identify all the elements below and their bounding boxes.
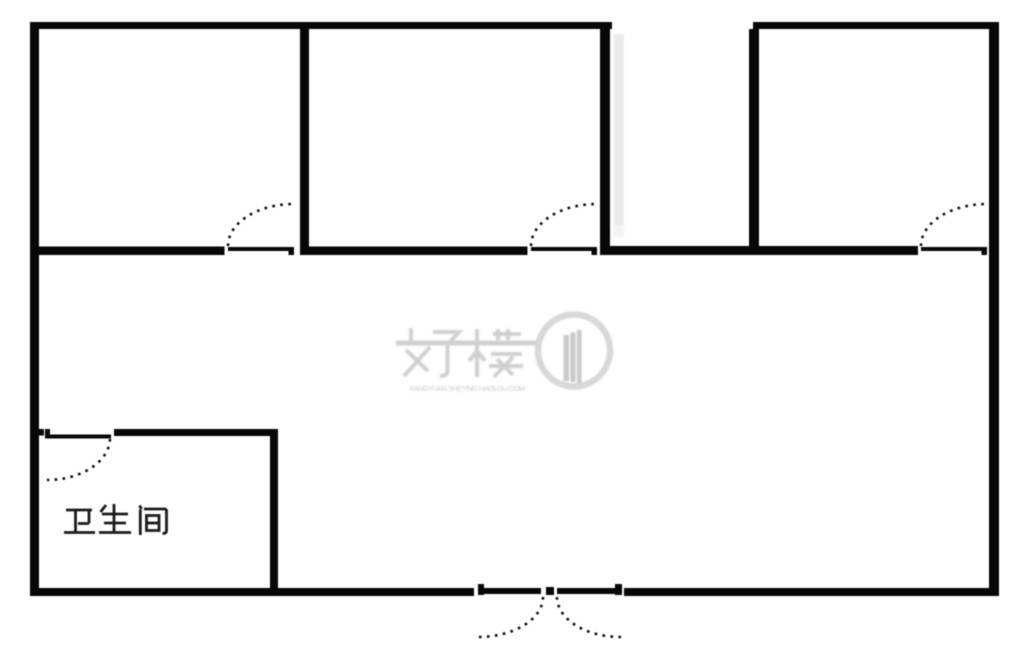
svg-text:FANGYUAN SHEYING HAOLOU.COM: FANGYUAN SHEYING HAOLOU.COM bbox=[410, 384, 525, 393]
